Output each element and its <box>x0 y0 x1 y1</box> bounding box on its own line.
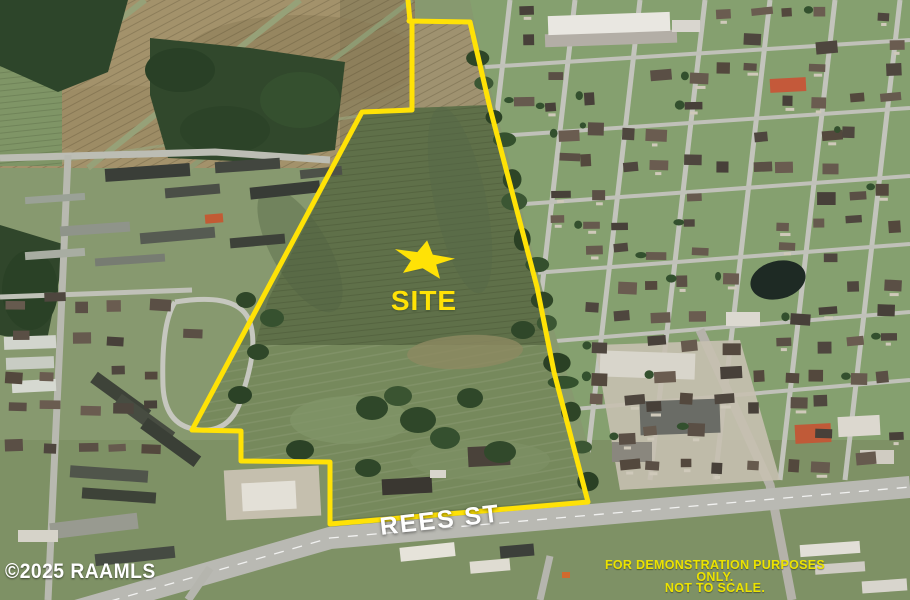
aerial-site-photo: SITE REES ST ©2025 RAAMLS FOR DEMONSTRAT… <box>0 0 910 600</box>
sports-court <box>770 77 807 93</box>
white-commercial-building <box>241 481 296 512</box>
site-boundary-stub <box>408 0 410 21</box>
disclaimer-line1: FOR DEMONSTRATION PURPOSES ONLY. <box>605 558 825 584</box>
watermark: ©2025 RAAMLS <box>5 560 156 584</box>
disclaimer-text: FOR DEMONSTRATION PURPOSES ONLY. NOT TO … <box>596 560 834 595</box>
disclaimer-line2: NOT TO SCALE. <box>665 581 765 595</box>
site-label: SITE <box>374 285 474 317</box>
